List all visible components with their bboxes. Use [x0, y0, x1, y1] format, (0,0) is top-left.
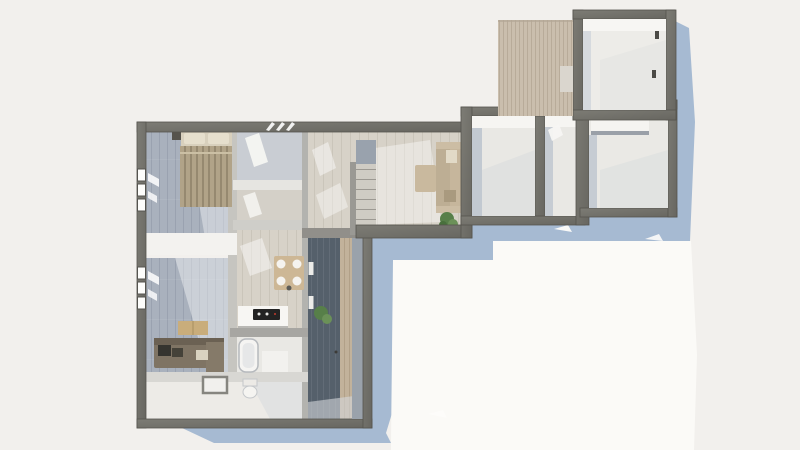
sofa-tan-arm-bottom	[436, 206, 462, 213]
sofa-brown-pillow-2	[172, 348, 183, 357]
sofa-brown-chaise	[206, 342, 224, 372]
wall-kitchen-bath	[230, 328, 308, 337]
topright-door-handle-2	[652, 70, 656, 78]
annex1-wall-mid	[535, 116, 545, 216]
outer-wall-top	[137, 122, 467, 132]
sofa-brown-pillow-1	[158, 345, 171, 356]
entry-wood-strip	[340, 238, 354, 419]
annex2-shelf-shadow	[591, 131, 649, 135]
wall-bedroom-divider-lit	[146, 233, 237, 255]
bed-duvet	[180, 146, 232, 207]
toilet-bowl	[243, 386, 257, 398]
topright-wall-bottom	[573, 110, 676, 120]
dining-plate-4	[293, 277, 302, 286]
wall-storage-kitchen	[233, 220, 308, 230]
floorplan-svg	[0, 0, 800, 450]
sofa-tan-pillow-2	[444, 190, 456, 202]
wall-stair-side	[350, 162, 356, 235]
entry-plant-2	[322, 314, 332, 324]
roof-deck-notch	[560, 66, 573, 92]
topright-wall-left	[573, 10, 583, 120]
sofa-tan-pillow-1	[446, 150, 457, 163]
wall-niche	[203, 377, 227, 393]
sofa-tan-arm-top	[436, 142, 462, 149]
annex-room-a-lit-top	[472, 116, 535, 128]
topright-room-lit-top	[583, 19, 666, 31]
bathtub-basin	[243, 343, 255, 368]
window-pane-2	[138, 184, 146, 196]
window-pane-6	[138, 297, 146, 309]
sofa-brown-pillow-3	[196, 350, 208, 360]
roof-deck-edge	[498, 20, 573, 22]
outer-wall-right-lower	[363, 232, 372, 428]
dining-plate-1	[277, 260, 286, 269]
entry-door-panel-1	[309, 262, 314, 275]
hallway-floor	[308, 131, 356, 238]
window-pane-4	[138, 267, 146, 279]
topright-door-handle-1	[655, 31, 659, 39]
bed-pillow-2	[208, 133, 229, 144]
cooktop-knob-1	[258, 313, 261, 316]
annex-room-a-wall-shade	[472, 128, 482, 216]
annex2-wall-shade	[589, 135, 597, 208]
window-pane-5	[138, 282, 146, 294]
annex-room-b-lit-top	[545, 116, 576, 127]
shower-unit	[262, 351, 288, 372]
pendant-lamp	[287, 286, 292, 291]
cooktop-indicator	[274, 313, 276, 315]
topright-room-wall-shade	[583, 31, 591, 110]
floorplan-canvas	[0, 0, 800, 450]
annex1-wall-bottom	[461, 216, 585, 225]
dining-plate-2	[293, 260, 302, 269]
toilet-tank	[243, 379, 257, 386]
dining-plate-3	[277, 277, 286, 286]
cooktop-knob-2	[266, 313, 269, 316]
stair-void	[356, 140, 376, 164]
topright-wall-top	[573, 10, 675, 19]
sunlit-ground	[391, 241, 697, 450]
staircase	[356, 164, 376, 233]
outer-wall-bottom	[137, 419, 372, 428]
window-pane-3	[138, 199, 146, 211]
annex2-wall-bottom	[580, 208, 677, 217]
topright-wall-right	[666, 10, 676, 120]
ottoman	[415, 165, 436, 192]
entry-door-panel-2	[309, 296, 314, 309]
inner-face-right-wall	[352, 238, 363, 419]
window-pane-1	[138, 169, 146, 181]
wall-storage-divider	[233, 180, 308, 190]
bed-pillow-1	[184, 133, 205, 144]
entry-door-handle	[335, 351, 338, 354]
outer-wall-living-bottom	[356, 225, 472, 238]
